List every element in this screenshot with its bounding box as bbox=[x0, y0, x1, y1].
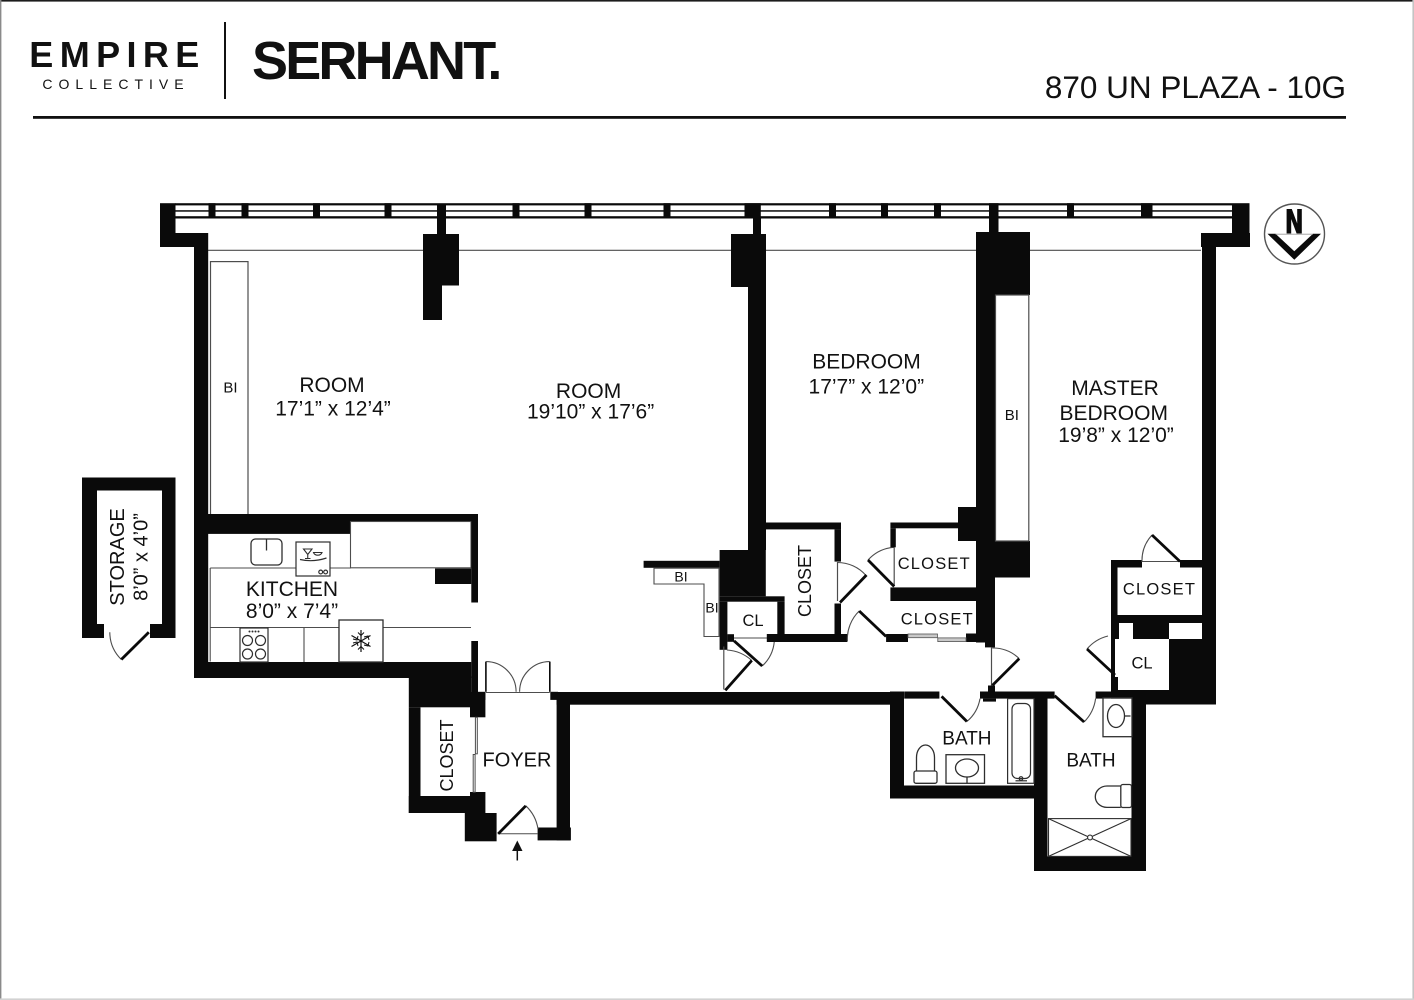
svg-text:SERHANT.: SERHANT. bbox=[252, 31, 500, 91]
svg-text:CL: CL bbox=[1131, 655, 1152, 673]
svg-text:STORAGE: STORAGE bbox=[107, 508, 129, 605]
svg-text:BI: BI bbox=[1005, 407, 1019, 424]
svg-text:BEDROOM: BEDROOM bbox=[812, 351, 921, 374]
svg-text:BATH: BATH bbox=[942, 729, 991, 750]
svg-text:8’0” x 7’4”: 8’0” x 7’4” bbox=[246, 600, 338, 623]
svg-text:CLOSET: CLOSET bbox=[901, 610, 974, 628]
svg-text:BEDROOM: BEDROOM bbox=[1059, 402, 1168, 425]
svg-text:BI: BI bbox=[674, 568, 687, 584]
svg-text:8’0” x 4’0”: 8’0” x 4’0” bbox=[131, 513, 153, 601]
svg-text:870 UN PLAZA - 10G: 870 UN PLAZA - 10G bbox=[1045, 69, 1346, 105]
svg-text:BI: BI bbox=[705, 599, 718, 615]
svg-text:19’10” x 17’6”: 19’10” x 17’6” bbox=[527, 401, 654, 424]
svg-text:KITCHEN: KITCHEN bbox=[246, 578, 338, 601]
svg-text:17’1” x 12’4”: 17’1” x 12’4” bbox=[275, 398, 391, 421]
svg-text:ROOM: ROOM bbox=[299, 374, 364, 397]
svg-text:FOYER: FOYER bbox=[483, 750, 552, 772]
svg-text:EMPIRE: EMPIRE bbox=[29, 34, 205, 75]
svg-text:CLOSET: CLOSET bbox=[795, 545, 815, 617]
svg-text:CLOSET: CLOSET bbox=[437, 719, 457, 791]
svg-text:CLOSET: CLOSET bbox=[1123, 581, 1196, 599]
svg-text:MASTER: MASTER bbox=[1071, 377, 1159, 400]
svg-text:17’7” x 12’0”: 17’7” x 12’0” bbox=[809, 376, 925, 399]
svg-text:19’8” x 12’0”: 19’8” x 12’0” bbox=[1058, 424, 1174, 447]
svg-text:BATH: BATH bbox=[1066, 751, 1115, 772]
svg-text:CLOSET: CLOSET bbox=[898, 555, 971, 573]
svg-text:CL: CL bbox=[742, 612, 763, 630]
svg-text:BI: BI bbox=[223, 380, 237, 397]
svg-text:COLLECTIVE: COLLECTIVE bbox=[42, 76, 189, 92]
